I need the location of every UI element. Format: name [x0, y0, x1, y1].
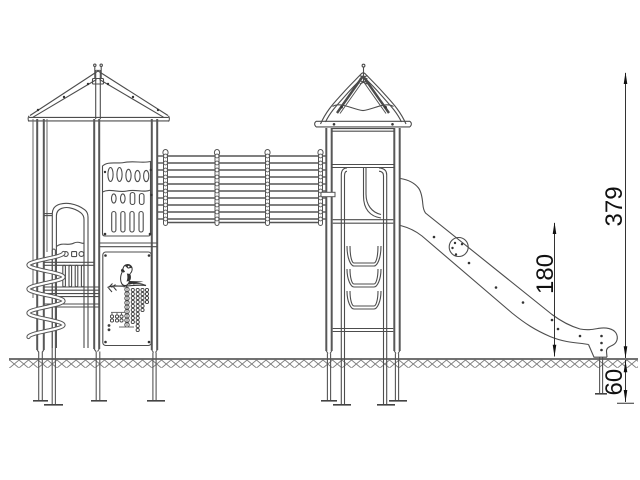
- svg-text:60: 60: [601, 369, 628, 396]
- svg-text:180: 180: [532, 254, 559, 294]
- svg-text:379: 379: [601, 186, 628, 226]
